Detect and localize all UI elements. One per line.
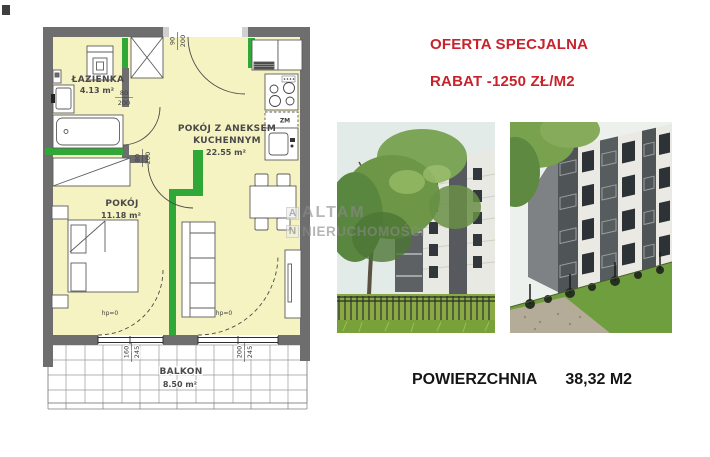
room-area-living: 22.55 m²	[206, 148, 246, 157]
room-label-balcony: BALKON	[159, 367, 202, 377]
svg-text:80: 80	[120, 89, 128, 97]
balcony	[48, 345, 307, 409]
area-info: POWIERZCHNIA 38,32 M2	[412, 371, 632, 389]
svg-text:200: 200	[118, 99, 130, 107]
watermark-row-2: N NIERUCHOMOŚCI	[286, 222, 425, 240]
watermark-row-1: A ALTAM	[286, 204, 425, 222]
svg-text:80: 80	[134, 154, 142, 162]
svg-text:160: 160	[123, 346, 131, 358]
svg-text:245: 245	[133, 346, 141, 358]
room-area-bathroom: 4.13 m²	[80, 86, 115, 95]
offer-line-1: OFERTA SPECJALNA	[430, 36, 588, 53]
room-area-balcony: 8.50 m²	[163, 380, 198, 389]
hp-label-left: hp=0	[102, 310, 119, 317]
svg-text:200: 200	[179, 35, 187, 47]
building-photo-2	[510, 122, 672, 333]
room-label-living-1: POKÓJ Z ANEKSEM	[178, 122, 276, 134]
svg-text:90: 90	[169, 37, 177, 45]
watermark-word-nieruchomosci: NIERUCHOMOŚCI	[302, 224, 425, 239]
watermark-logo-a: A	[286, 207, 299, 220]
watermark-logo-n: N	[286, 225, 299, 238]
offer-text: OFERTA SPECJALNA RABAT -1250 ZŁ/M2	[430, 36, 588, 90]
photo1-lawn-fence	[337, 294, 495, 333]
area-label: POWIERZCHNIA	[412, 371, 537, 389]
area-value: 38,32 M2	[565, 371, 632, 389]
room-label-bathroom: ŁAZIENKA	[71, 75, 125, 85]
room-area-bedroom: 11.18 m²	[101, 211, 141, 220]
svg-text:200: 200	[236, 346, 244, 358]
watermark: A ALTAM N NIERUCHOMOŚCI	[286, 204, 425, 240]
zm-label: ZM	[280, 118, 290, 125]
watermark-word-altam: ALTAM	[302, 204, 366, 222]
offer-line-2: RABAT -1250 ZŁ/M2	[430, 73, 588, 90]
listing-image: ŁAZIENKA 4.13 m² POKÓJ Z ANEKSEM KUCHENN…	[0, 0, 710, 457]
room-label-living-2: KUCHENNYM	[193, 136, 261, 146]
room-label-bedroom: POKÓJ	[105, 197, 138, 209]
svg-text:245: 245	[246, 346, 254, 358]
hp-label-right: hp=0	[216, 310, 233, 317]
floorplan: ŁAZIENKA 4.13 m² POKÓJ Z ANEKSEM KUCHENN…	[0, 0, 335, 457]
svg-text:200: 200	[144, 152, 152, 164]
